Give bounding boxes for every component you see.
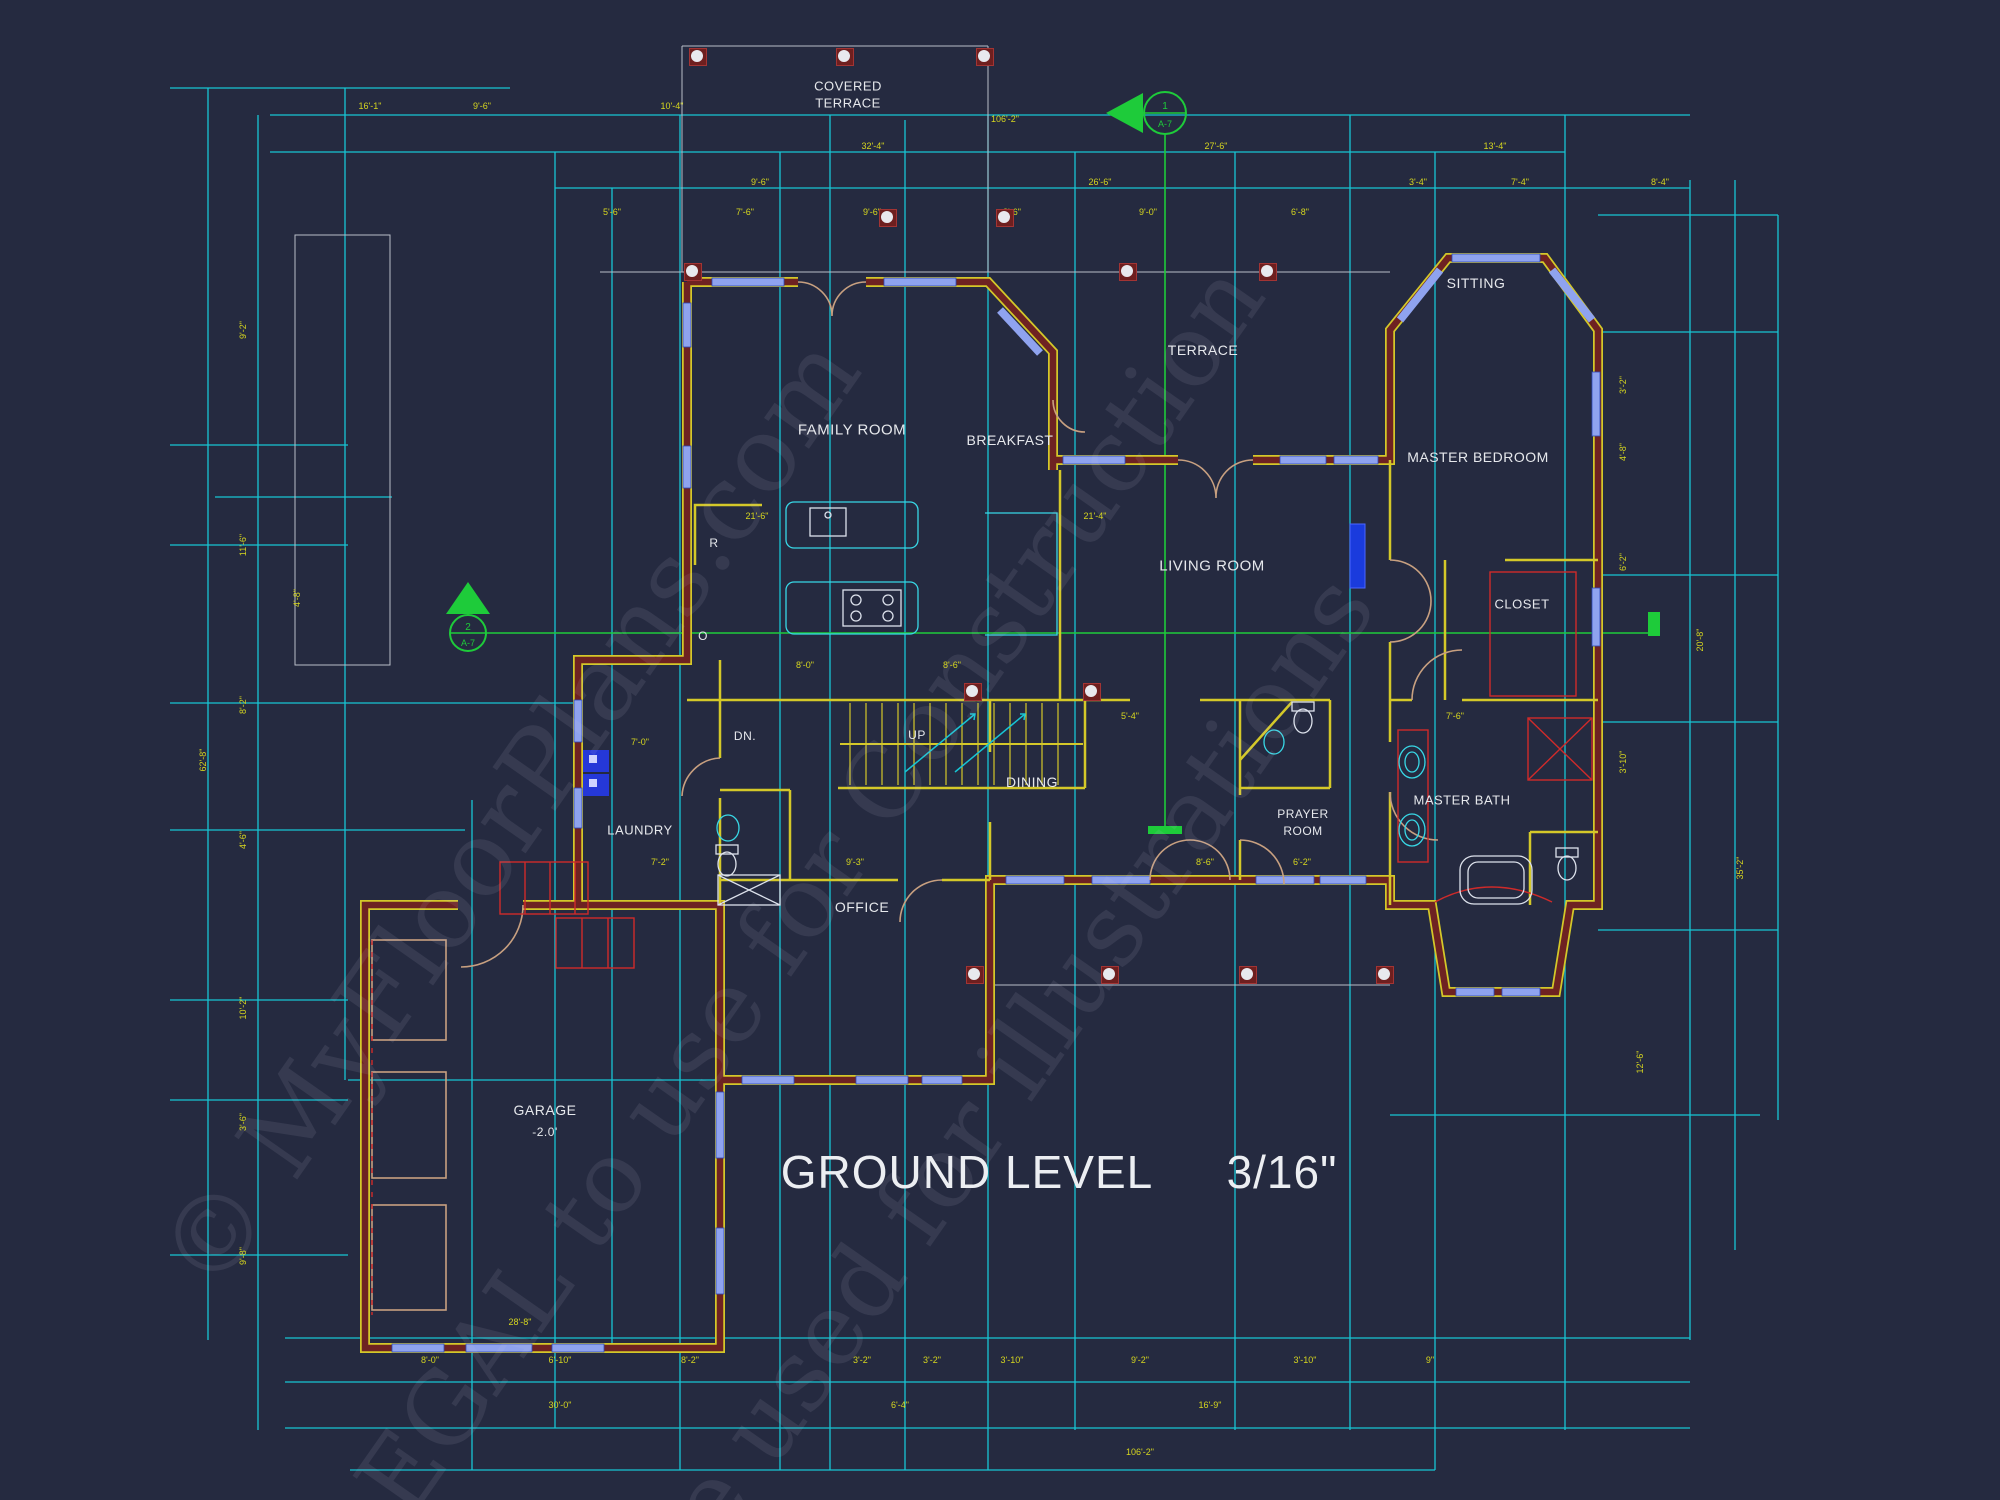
dimension-label: 9'-6" xyxy=(751,177,769,187)
dimension-label-vertical: 8'-2" xyxy=(238,696,248,714)
room-label-room: ROOM xyxy=(1283,824,1322,838)
dimension-label: 9'-3" xyxy=(846,857,864,867)
dimension-label: 3'-10" xyxy=(1001,1355,1024,1365)
svg-text:2: 2 xyxy=(465,622,471,633)
dimension-label: 13'-4" xyxy=(1484,141,1507,151)
room-label-covered: COVERED xyxy=(814,79,882,94)
dimension-label-vertical: 4'-8" xyxy=(1618,443,1628,461)
dimension-label: 21'-6" xyxy=(746,511,769,521)
room-label-closet: CLOSET xyxy=(1494,597,1549,612)
dimension-label: 7'-4" xyxy=(1511,177,1529,187)
dimension-label: 106'-2" xyxy=(1126,1447,1154,1457)
dimension-label-vertical: 9'-8" xyxy=(238,1247,248,1265)
dimension-label: 3'-2" xyxy=(923,1355,941,1365)
dimension-label: 21'-4" xyxy=(1084,511,1107,521)
dimension-label: 26'-6" xyxy=(1089,177,1112,187)
dimension-label: 9'-6" xyxy=(473,101,491,111)
column-marker xyxy=(689,48,707,66)
dimension-label: 6'-10" xyxy=(549,1355,572,1365)
dimension-label: 28'-8" xyxy=(509,1317,532,1327)
dimension-label-vertical: 3'-6" xyxy=(238,1113,248,1131)
room-label-master-bedroom: MASTER BEDROOM xyxy=(1407,449,1549,465)
dimension-label-vertical: 3'-10" xyxy=(1618,751,1628,774)
column-marker xyxy=(964,683,982,701)
plan-title: GROUND LEVEL xyxy=(781,1145,1153,1199)
dimension-label: 10'-4" xyxy=(661,101,684,111)
dimension-label-vertical: 9'-2" xyxy=(238,321,248,339)
dimension-label: 5'-4" xyxy=(1121,711,1139,721)
svg-text:A-7: A-7 xyxy=(1158,119,1172,129)
dimension-label: 5'-6" xyxy=(603,207,621,217)
dimension-label-vertical: 12'-6" xyxy=(1635,1051,1645,1074)
dimension-label: 8'-6" xyxy=(1196,857,1214,867)
column-marker xyxy=(836,48,854,66)
dimension-label: 6'-2" xyxy=(1293,857,1311,867)
dimension-label: 6'-8" xyxy=(1291,207,1309,217)
dimension-label: 7'-6" xyxy=(736,207,754,217)
dimension-label: 7'-2" xyxy=(651,857,669,867)
dimension-label: 8'-4" xyxy=(1651,177,1669,187)
dimension-label: 16'-1" xyxy=(359,101,382,111)
column-marker xyxy=(1119,263,1137,281)
room-label-family-room: FAMILY ROOM xyxy=(798,422,906,439)
column-marker xyxy=(1101,966,1119,984)
dimension-grid-lines xyxy=(170,88,1778,1470)
dimension-label-vertical: 11'-6" xyxy=(238,534,248,556)
room-label-breakfast: BREAKFAST xyxy=(967,432,1054,448)
room-label-prayer: PRAYER xyxy=(1277,807,1328,821)
room-label-o: O xyxy=(698,629,708,643)
dimension-label-vertical: 6'-2" xyxy=(1618,553,1628,571)
dimension-label-vertical: 62'-8" xyxy=(198,749,208,772)
room-label-dining: DINING xyxy=(1006,774,1058,790)
room-label--2-0-: -2.0' xyxy=(532,1125,557,1139)
dimension-label-vertical: 10'-2" xyxy=(238,997,248,1020)
dimension-label: 27'-6" xyxy=(1205,141,1228,151)
dimension-label: 9'-2" xyxy=(1131,1355,1149,1365)
dimension-label: 8'-2" xyxy=(681,1355,699,1365)
room-label-living-room: LIVING ROOM xyxy=(1159,558,1265,575)
room-label-terrace: TERRACE xyxy=(1168,342,1238,358)
column-marker xyxy=(1259,263,1277,281)
room-label-terrace: TERRACE xyxy=(815,96,881,111)
dimension-label: 30'-0" xyxy=(549,1400,572,1410)
floorplan-canvas: 1 A-7 2 A-7 xyxy=(0,0,2000,1500)
svg-text:1: 1 xyxy=(1162,101,1168,112)
dimension-label: 106'-2" xyxy=(991,114,1019,124)
dimension-label: 7'-6" xyxy=(1446,711,1464,721)
room-label-up: UP xyxy=(908,728,926,742)
column-marker xyxy=(879,209,897,227)
room-label-office: OFFICE xyxy=(835,899,889,915)
column-marker xyxy=(684,263,702,281)
room-label-dn-: DN. xyxy=(734,729,756,743)
room-label-laundry: LAUNDRY xyxy=(607,823,672,838)
column-marker xyxy=(966,966,984,984)
room-label-garage: GARAGE xyxy=(514,1102,577,1118)
dimension-label: 16'-9" xyxy=(1199,1400,1222,1410)
column-marker xyxy=(976,48,994,66)
dimension-label: 3'-2" xyxy=(853,1355,871,1365)
dimension-label: 9" xyxy=(1426,1355,1434,1365)
section-marker-2: 2 A-7 xyxy=(446,582,490,651)
section-marker-1: 1 A-7 xyxy=(1106,92,1186,134)
column-marker xyxy=(1239,966,1257,984)
dimension-label: 9'-0" xyxy=(1139,207,1157,217)
column-marker xyxy=(1083,683,1101,701)
room-label-r: R xyxy=(709,536,718,550)
dimension-label-vertical: 4'-6" xyxy=(238,831,248,849)
dimension-label: 32'-4" xyxy=(862,141,885,151)
plan-scale: 3/16" xyxy=(1227,1145,1338,1199)
dimension-label-vertical: 3'-2" xyxy=(1618,376,1628,394)
dimension-label-vertical: 4'-8" xyxy=(292,589,302,607)
dimension-label: 6'-4" xyxy=(891,1400,909,1410)
column-marker xyxy=(996,209,1014,227)
room-label-master-bath: MASTER BATH xyxy=(1414,793,1511,808)
svg-text:A-7: A-7 xyxy=(461,638,475,648)
dimension-label: 7'-0" xyxy=(631,737,649,747)
dimension-label-vertical: 35'-2" xyxy=(1735,857,1745,880)
dimension-label: 8'-0" xyxy=(796,660,814,670)
dimension-label: 8'-6" xyxy=(943,660,961,670)
dimension-label-vertical: 20'-8" xyxy=(1695,629,1705,652)
dimension-label: 3'-4" xyxy=(1409,177,1427,187)
dimension-label: 8'-0" xyxy=(421,1355,439,1365)
dimension-label: 3'-10" xyxy=(1294,1355,1317,1365)
room-label-sitting: SITTING xyxy=(1447,275,1506,291)
fireplace xyxy=(1350,524,1365,588)
column-marker xyxy=(1376,966,1394,984)
